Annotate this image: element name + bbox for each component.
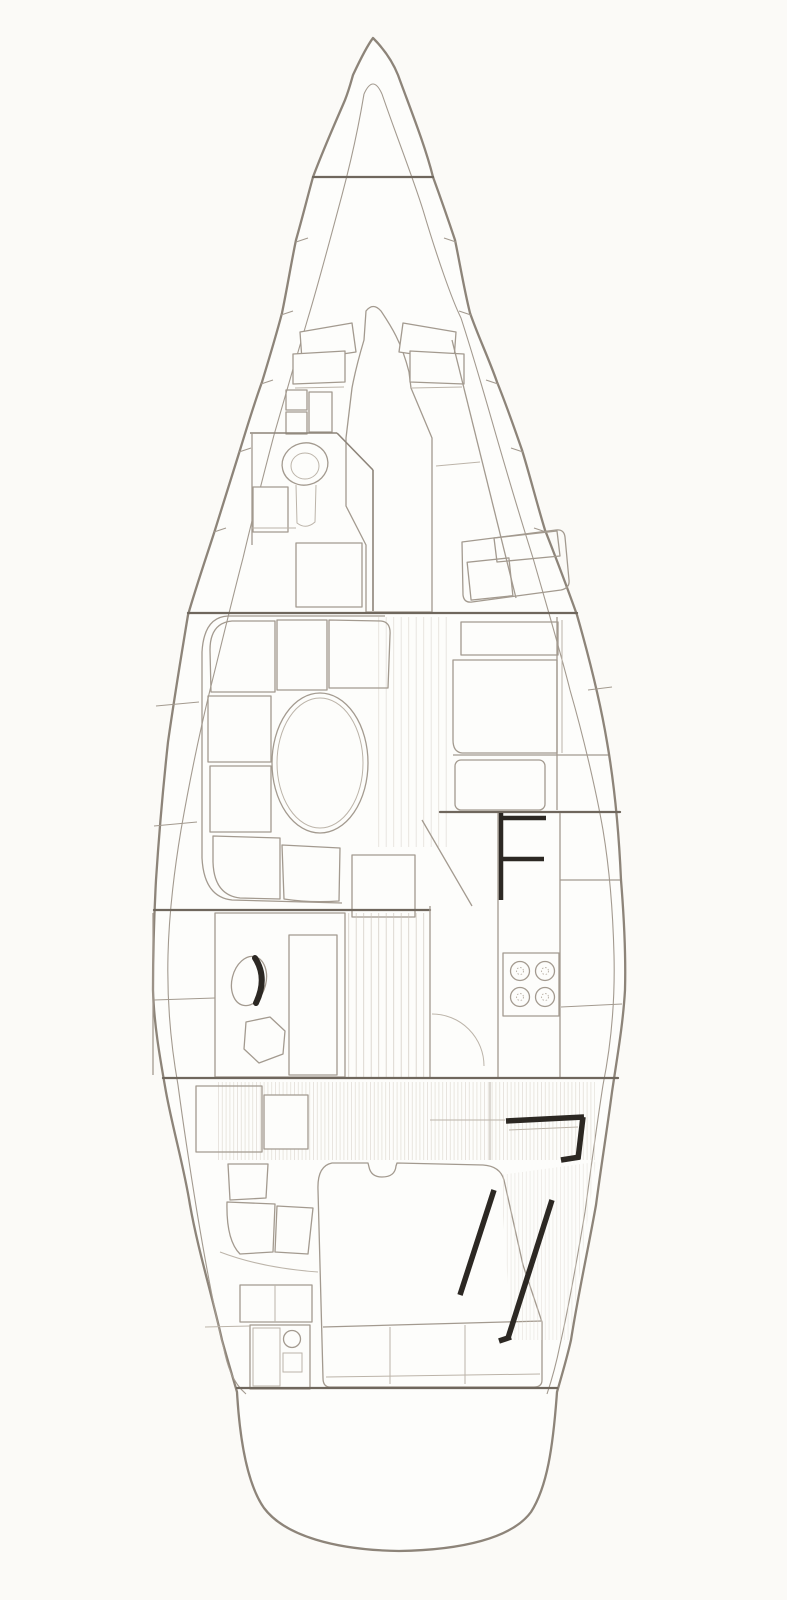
scanned-yacht-plan-page [0, 0, 787, 1600]
saloon-sole [372, 617, 448, 847]
galley-sole [347, 913, 430, 1078]
aft-port-locker-2 [264, 1095, 308, 1149]
yacht-deck-plan [0, 0, 787, 1600]
head-sink-counter [253, 487, 288, 532]
saloon-table [272, 693, 368, 833]
